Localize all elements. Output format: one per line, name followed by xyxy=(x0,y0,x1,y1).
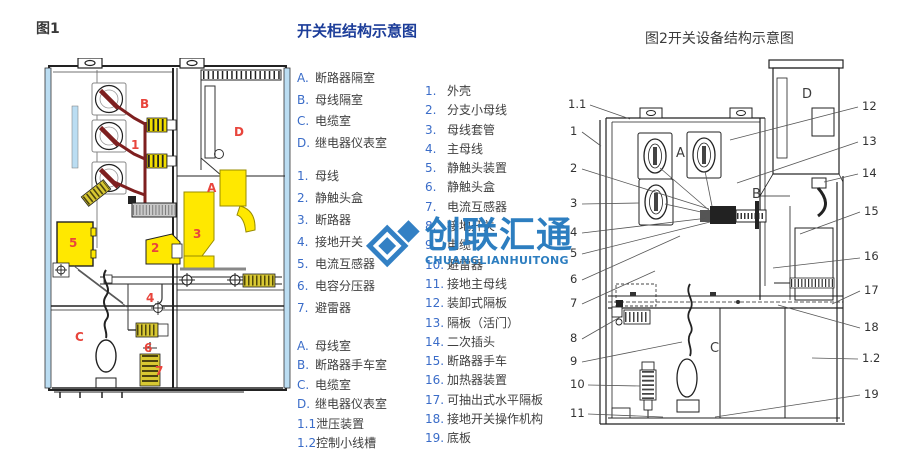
fig1-label-5: 5 xyxy=(69,236,77,250)
watermark: 创联汇通 CHUANGLIANHUITONG xyxy=(364,216,573,272)
fig2-callout-11: 11 xyxy=(570,406,585,420)
legend-item: 7.避雷器 xyxy=(297,301,375,323)
fig2-heater-band xyxy=(774,278,834,288)
fig2-callout-1-2: 1.2 xyxy=(862,351,880,365)
fig1-label-D: D xyxy=(234,125,244,139)
fig1-vent-strip xyxy=(201,70,281,80)
page-title: 开关柜结构示意图 xyxy=(297,20,417,41)
legend-item: 11.接地主母线 xyxy=(425,277,543,296)
fig2-relay-box xyxy=(760,60,843,196)
legend-item: D.继电器仪表室 xyxy=(297,136,387,158)
fig2-region-B: B xyxy=(752,187,761,202)
legend-item: C.电缆室 xyxy=(297,378,387,397)
watermark-en: CHUANGLIANHUITONG xyxy=(425,254,573,267)
fig2-callout-1-1: 1.1 xyxy=(568,97,586,111)
fig2-callout-8: 8 xyxy=(570,331,577,345)
legend-item: 15.断路器手车 xyxy=(425,354,543,373)
fig1-label-2: 2 xyxy=(151,241,159,255)
fig1-label-3: 3 xyxy=(193,227,201,241)
legend-item: 4.主母线 xyxy=(425,142,543,161)
fig2-callout-1: 1 xyxy=(570,124,577,138)
fig1-label-B: B xyxy=(140,97,149,111)
fig1-label-1: 1 xyxy=(131,138,139,152)
legend-item: 14.二次插头 xyxy=(425,335,543,354)
legend-item: 1.外壳 xyxy=(425,84,543,103)
legend-item: 2.静触头盒 xyxy=(297,191,375,213)
legend-item: C.电缆室 xyxy=(297,114,387,136)
legend-item: A.母线室 xyxy=(297,339,387,358)
legend-item: D.继电器仪表室 xyxy=(297,397,387,416)
legend-item: 12.装卸式隔板 xyxy=(425,296,543,315)
fig2-lower-partitions xyxy=(720,308,785,418)
fig2-callout-12: 12 xyxy=(862,99,877,113)
legend-item: 3.母线套管 xyxy=(425,123,543,142)
fig2-callout-16: 16 xyxy=(864,249,879,263)
legend-item: A.断路器隔室 xyxy=(297,71,387,93)
fig2-callout-10: 10 xyxy=(570,377,585,391)
legend-item: 5.静触头装置 xyxy=(425,161,543,180)
fig2-callout-7: 7 xyxy=(570,296,577,310)
figure2-diagram: 1.1 1 2 3 4 5 6 7 8 9 10 11 12 13 14 15 … xyxy=(560,56,900,434)
fig1-label-4: 4 xyxy=(146,291,154,305)
legend-item: 18.接地开关操作机构 xyxy=(425,412,543,431)
fig2-callout-15: 15 xyxy=(864,204,879,218)
fig2-callout-6: 6 xyxy=(570,272,577,286)
fig1-label-6: 6 xyxy=(144,341,152,355)
legend-item: B.母线隔室 xyxy=(297,93,387,115)
fig2-callout-17: 17 xyxy=(864,283,879,297)
fig1-label-7: 7 xyxy=(155,364,163,378)
legend-item: 1.2控制小线槽 xyxy=(297,436,387,455)
figure1-diagram: B 1 D A 3 2 5 4 C 6 7 xyxy=(44,58,294,398)
fig2-callouts-right: 12 13 14 15 16 17 18 1.2 19 xyxy=(862,99,880,401)
legend-item: 6.电容分压器 xyxy=(297,279,375,301)
legend-item: 1.1泄压装置 xyxy=(297,417,387,436)
fig2-region-A: A xyxy=(676,146,685,161)
legend-item: 13.隔板（活门） xyxy=(425,316,543,335)
figure1-caption: 图1 xyxy=(36,18,60,38)
fig2-callout-14: 14 xyxy=(862,166,877,180)
fig1-label-A: A xyxy=(207,181,217,195)
legend-item: 1.母线 xyxy=(297,169,375,191)
fig2-callout-13: 13 xyxy=(862,134,877,148)
fig1-label-C: C xyxy=(75,330,84,344)
legend-item: 2.分支小母线 xyxy=(425,103,543,122)
legend-compartments: A.断路器隔室 B.母线隔室 C.电缆室 D.继电器仪表室 xyxy=(297,71,387,157)
watermark-text: 创联汇通 CHUANGLIANHUITONG xyxy=(425,216,573,272)
watermark-cn: 创联汇通 xyxy=(425,216,573,256)
fig2-cabinet-frame xyxy=(600,118,845,424)
legend-item: 6.静触头盒 xyxy=(425,180,543,199)
fig2-lifting-lugs xyxy=(640,108,752,118)
fig2-secondary-plug xyxy=(812,178,826,216)
fig2-callout-9: 9 xyxy=(570,354,577,368)
legend-item: 19.底板 xyxy=(425,431,543,450)
watermark-logo-icon xyxy=(364,216,422,272)
fig2-arrester xyxy=(640,362,656,418)
fig2-callout-18: 18 xyxy=(864,320,879,334)
fig2-callout-3: 3 xyxy=(570,196,577,210)
fig2-region-D: D xyxy=(802,87,812,102)
legend-item: 16.加热器装置 xyxy=(425,373,543,392)
figure2-caption: 图2开关设备结构示意图 xyxy=(645,28,794,48)
fig2-cable xyxy=(677,284,699,412)
fig2-callout-19: 19 xyxy=(864,387,879,401)
legend-item: B.断路器手车室 xyxy=(297,358,387,377)
legend-rooms: A.母线室 B.断路器手车室 C.电缆室 D.继电器仪表室 1.1泄压装置 1.… xyxy=(297,339,387,455)
fig2-callout-2: 2 xyxy=(570,161,577,175)
fig1-breaker-bushings xyxy=(92,83,126,194)
legend-item: 17.可抽出式水平隔板 xyxy=(425,393,543,412)
fig2-region-C: C xyxy=(710,341,719,356)
